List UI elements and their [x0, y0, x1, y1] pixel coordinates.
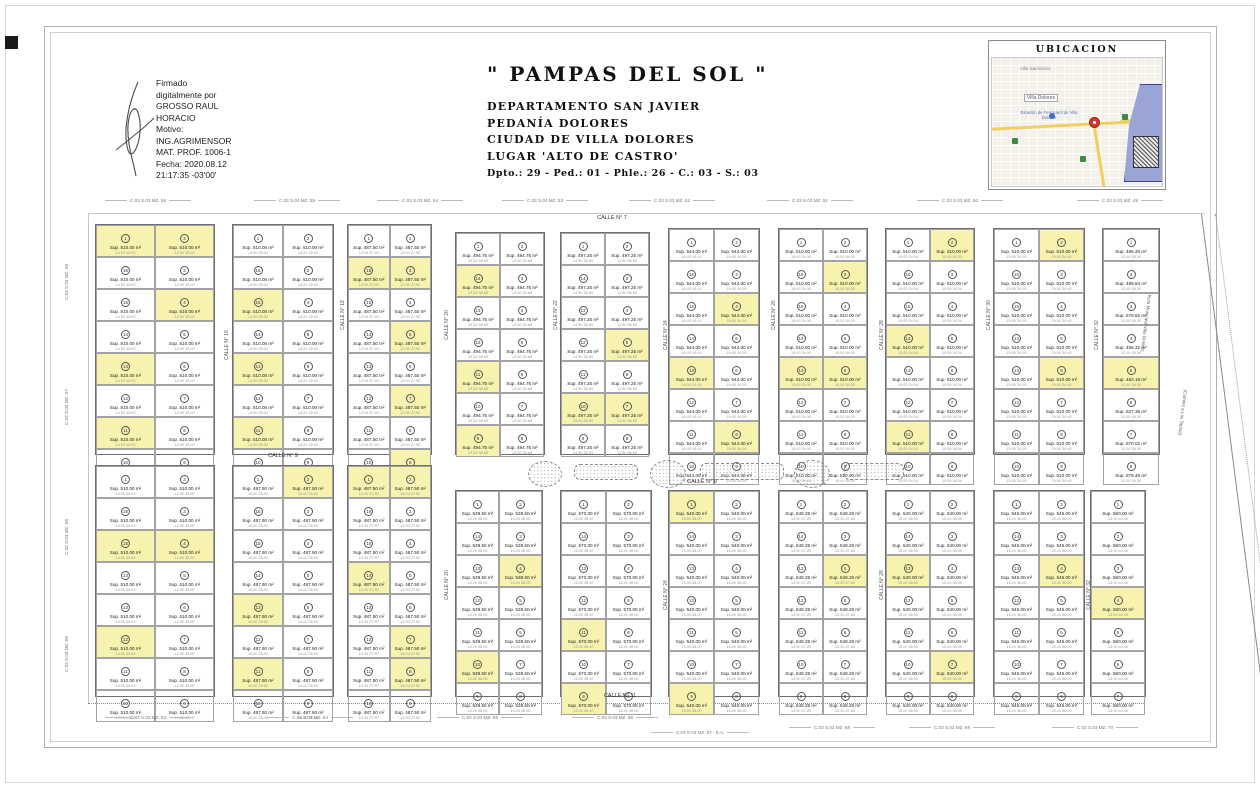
lot-number: 12	[1012, 596, 1021, 605]
lot: 1Sup. 497.25 m²13.50 36.83	[561, 233, 605, 265]
lot-number: 16	[364, 507, 373, 516]
lot-dimensions: 14.50 35.00	[156, 379, 213, 384]
lot: 6Sup. 487.50 m²13.00 37.50	[390, 594, 432, 626]
lot-number: 14	[254, 571, 263, 580]
lot-number: 16	[364, 266, 373, 275]
lot-dimensions: 14.20 38.00	[500, 613, 541, 618]
manzana-block: 1Sup. 510.00 m²14.50 35.002Sup. 510.00 m…	[232, 224, 334, 455]
lot-dimensions: 13.50 36.83	[562, 451, 604, 456]
map-site-hatch	[1133, 136, 1159, 168]
lot: 4Sup. 487.50 m²13.00 37.50	[390, 530, 432, 562]
lot-number: 7	[516, 660, 525, 669]
lot-number: 13	[797, 564, 806, 573]
lot-dimensions: 15.00 38.00	[607, 517, 650, 522]
lot: 3Sup. 560.00 m²13.00 40.00	[1091, 555, 1145, 587]
lot-number: 1	[254, 475, 263, 484]
lot-dimensions: 15.00 36.00	[931, 549, 973, 554]
lot-number: 13	[579, 306, 588, 315]
lot-dimensions: 13.50 36.83	[562, 387, 604, 392]
manzana-block: 1Sup. 548.25 m²14.50 37.802Sup. 548.25 m…	[778, 490, 868, 697]
lot-number: 10	[254, 699, 263, 708]
lot-dimensions: 16.00 34.00	[670, 255, 713, 260]
lot-number: 3	[406, 507, 415, 516]
lot-number: 12	[797, 596, 806, 605]
lot-number: 11	[904, 628, 913, 637]
lot: 5Sup. 487.50 m²13.00 37.50	[390, 562, 432, 594]
street-label-vertical: CALLE N° 18	[340, 300, 346, 330]
lot: 3Sup. 548.25 m²14.50 37.80	[823, 523, 867, 555]
lot: 9Sup. 494.75 m²13.50 36.65	[456, 425, 500, 457]
lot-dimensions: 14.50 35.00	[97, 315, 154, 320]
lot-dimensions: 15.00 36.00	[931, 613, 973, 618]
lot: 6Sup. 546.00 m²15.20 36.00	[1039, 619, 1084, 651]
lot-dimensions: 15.20 36.00	[1040, 645, 1083, 650]
lot: 4Sup. 560.00 m²13.00 40.00	[1091, 587, 1145, 619]
lot-number: 3	[180, 507, 189, 516]
lot-number: 6	[518, 370, 527, 379]
lot-dimensions: 15.00 36.00	[670, 645, 713, 650]
lot-number: 12	[797, 398, 806, 407]
block-cadastral-label-vertical: C.03 S.03 MZ. 66	[64, 519, 69, 555]
lot-dimensions: 14.50 35.00	[97, 411, 154, 416]
lot-dimensions: 14.50 35.00	[97, 379, 154, 384]
lot-dimensions: 13.50 36.83	[562, 419, 604, 424]
manzana-block: 1Sup. 497.25 m²13.50 36.832Sup. 497.25 m…	[560, 232, 650, 455]
lot-number: 2	[304, 234, 313, 243]
lot-number: 5	[304, 330, 313, 339]
lot: 7Sup. 539.50 m²14.20 38.00	[499, 651, 542, 683]
lot-number: 11	[797, 430, 806, 439]
lot-dimensions: 15.00 34.00	[931, 479, 973, 484]
lot: 11Sup. 487.50 m²13.00 37.50	[348, 658, 390, 690]
lot-number: 3	[623, 274, 632, 283]
lot: 2Sup. 487.50 m²13.00 37.50	[390, 225, 432, 257]
lot-dimensions: 14.50 35.00	[156, 684, 213, 689]
lot: 5Sup. 510.00 m²14.50 35.00	[283, 321, 333, 353]
lot-dimensions: 12.50 38.30	[1104, 479, 1158, 484]
north-boundary-line	[88, 213, 1204, 214]
lot: 12Sup. 510.00 m²14.50 35.00	[233, 385, 283, 417]
lot-number: 8	[516, 692, 525, 701]
lot-number: 11	[474, 370, 483, 379]
lot-number: 15	[904, 302, 913, 311]
lot-number: 4	[516, 564, 525, 573]
lot: 3Sup. 539.50 m²14.20 38.00	[499, 523, 542, 555]
lot: 12Sup. 544.00 m²16.00 34.00	[669, 389, 714, 421]
lot-dimensions: 13.00 37.50	[349, 347, 389, 352]
lot-dimensions: 14.00 35.00	[284, 684, 332, 689]
lot-dimensions: 14.50 37.80	[780, 549, 822, 554]
lot-dimensions: 13.50 36.65	[457, 355, 499, 360]
lot-number: 7	[624, 660, 633, 669]
lot-number: 1	[904, 238, 913, 247]
lot: 9Sup. 510.00 m²15.00 34.00	[930, 453, 974, 485]
lot-dimensions: 14.00 35.00	[234, 684, 282, 689]
lot-dimensions: 15.00 34.00	[887, 255, 929, 260]
lot-number: 8	[623, 434, 632, 443]
lot-number: 11	[1012, 430, 1021, 439]
lot-dimensions: 14.00 35.00	[284, 556, 332, 561]
lot-number: 8	[406, 667, 415, 676]
lot-number: 4	[948, 302, 957, 311]
block-cadastral-label: C.03 S.03 MZ. 66	[569, 714, 661, 720]
lot: 14Sup. 539.50 m²14.20 38.00	[456, 523, 499, 555]
lot-dimensions: 15.00 36.00	[887, 677, 929, 682]
map-label-station: Estación de Ferrocarril de Villa Dolores	[1020, 110, 1078, 120]
lot-dimensions: 13.00 37.50	[349, 443, 389, 448]
lot-number: 8	[732, 430, 741, 439]
lot: 14Sup. 548.25 m²14.50 37.80	[779, 523, 823, 555]
lot-number: 2	[732, 500, 741, 509]
lot: 3Sup. 540.00 m²15.00 36.00	[714, 523, 759, 555]
lot: 2Sup. 540.00 m²15.00 36.00	[714, 491, 759, 523]
lot-number: 16	[687, 270, 696, 279]
lot-dimensions: 14.50 35.00	[97, 251, 154, 256]
lot-number: 16	[121, 507, 130, 516]
lot: 2Sup. 548.25 m²14.50 37.80	[823, 491, 867, 523]
lot-dimensions: 15.00 34.00	[887, 319, 929, 324]
lot-dimensions: 15.00 36.00	[715, 581, 758, 586]
lot-dimensions: 13.50 36.65	[457, 387, 499, 392]
lot: 7Sup. 570.02 m²12.50 38.30	[1103, 421, 1159, 453]
lot-number: 5	[1057, 334, 1066, 343]
lot-number: 14	[797, 532, 806, 541]
lot-number: 5	[304, 571, 313, 580]
lot: 8Sup. 497.25 m²13.50 36.83	[605, 425, 649, 457]
lot-dimensions: 14.50 35.00	[234, 283, 282, 288]
manzana-block: 1Sup. 510.00 m²14.50 35.002Sup. 510.00 m…	[95, 465, 215, 697]
lot-dimensions: 14.50 35.00	[234, 251, 282, 256]
lot-number: 2	[180, 475, 189, 484]
lot-number: 13	[904, 366, 913, 375]
lot-number: 2	[623, 242, 632, 251]
lot-dimensions: 15.00 34.00	[780, 319, 822, 324]
lot-dimensions: 15.00 34.00	[887, 383, 929, 388]
lot: 5Sup. 560.00 m²13.00 40.00	[1091, 619, 1145, 651]
lot: 6Sup. 487.50 m²13.00 37.50	[390, 353, 432, 385]
lot-number: 10	[1012, 462, 1021, 471]
lot-number: 8	[1057, 692, 1066, 701]
lot: 16Sup. 510.00 m²14.50 35.00	[96, 498, 155, 530]
lot-number: 9	[406, 699, 415, 708]
lot-number: 5	[518, 338, 527, 347]
lot-dimensions: 14.20 38.00	[500, 677, 541, 682]
lot: 12Sup. 487.50 m²13.00 37.50	[348, 626, 390, 658]
lot-number: 11	[254, 667, 263, 676]
lot-number: 13	[579, 564, 588, 573]
lot-dimensions: 15.00 34.00	[931, 287, 973, 292]
lot-dimensions: 15.00 36.00	[715, 517, 758, 522]
lot-dimensions: 13.50 36.65	[457, 259, 499, 264]
lot-dimensions: 14.50 35.00	[156, 411, 213, 416]
lot-dimensions: 13.50 36.83	[606, 323, 648, 328]
lot-number: 7	[406, 635, 415, 644]
lot: 15Sup. 510.00 m²15.00 34.00	[779, 293, 823, 325]
lot-dimensions: 14.00 35.00	[284, 652, 332, 657]
lot: 12Sup. 497.25 m²13.50 36.83	[561, 329, 605, 361]
lot-dimensions: 15.00 34.00	[1040, 255, 1083, 260]
lot-dimensions: 14.00 35.00	[234, 492, 282, 497]
lot-dimensions: 15.00 34.00	[824, 415, 866, 420]
lot-number: 12	[254, 635, 263, 644]
lot-dimensions: 13.50 36.83	[606, 451, 648, 456]
lot-number: 10	[904, 660, 913, 669]
lot: 5Sup. 497.25 m²13.50 36.83	[605, 329, 649, 361]
lot-dimensions: 16.00 34.00	[670, 319, 713, 324]
lot: 14Sup. 540.00 m²15.00 36.00	[886, 523, 930, 555]
lot-number: 7	[841, 660, 850, 669]
lot-number: 4	[732, 564, 741, 573]
lot: 11Sup. 510.00 m²15.00 34.00	[994, 421, 1039, 453]
lot: 13Sup. 510.00 m²15.00 34.00	[779, 357, 823, 389]
lot: 5Sup. 540.00 m²15.00 36.00	[714, 587, 759, 619]
lot: 4Sup. 546.00 m²15.20 36.00	[1039, 555, 1084, 587]
lot-dimensions: 15.20 36.00	[995, 677, 1038, 682]
lot: 10Sup. 570.00 m²15.00 38.00	[561, 651, 606, 683]
cadastral-nomenclature: Dpto.: 29 - Ped.: 01 - Phle.: 26 - C.: 0…	[487, 168, 717, 179]
lot: 16Sup. 510.00 m²14.50 35.00	[233, 257, 283, 289]
route-shield-icon	[1012, 138, 1018, 144]
lot-dimensions: 15.20 36.00	[1040, 613, 1083, 618]
lot-dimensions: 15.00 34.00	[1040, 319, 1083, 324]
green-space-shape	[574, 464, 638, 480]
lot-number: 12	[254, 394, 263, 403]
lot-number: 15	[254, 298, 263, 307]
lot-dimensions: 14.20 38.00	[457, 613, 498, 618]
lot-number: 6	[180, 603, 189, 612]
lot: 16Sup. 487.50 m²13.00 37.50	[348, 257, 390, 289]
lot-number: 7	[304, 635, 313, 644]
lot-number: 10	[904, 462, 913, 471]
lot-dimensions: 15.00 38.00	[607, 581, 650, 586]
lot: 13Sup. 548.25 m²14.50 37.80	[779, 555, 823, 587]
lot: 7Sup. 540.00 m²15.00 36.00	[714, 651, 759, 683]
lot: 14Sup. 510.00 m²15.00 34.00	[994, 325, 1039, 357]
lot-dimensions: 14.50 35.00	[156, 556, 213, 561]
lot-number: 13	[1012, 366, 1021, 375]
lot-number: 14	[121, 330, 130, 339]
lot-dimensions: 14.50 35.00	[284, 283, 332, 288]
lot-dimensions: 15.00 36.00	[670, 549, 713, 554]
block-cadastral-label-vertical: C.03 S.03 MZ. 57	[64, 389, 69, 425]
street-label-vertical: CALLE N° 24	[663, 580, 669, 610]
lot: 1Sup. 510.00 m²14.50 35.00	[96, 466, 155, 498]
lot: 11Sup. 510.00 m²15.00 34.00	[886, 421, 930, 453]
lot-number: 12	[687, 398, 696, 407]
lot: 5Sup. 494.75 m²13.50 36.65	[500, 329, 544, 361]
block-cadastral-label: C.03 S.03 MZ. 55	[251, 197, 343, 203]
lot-number: 6	[732, 628, 741, 637]
lot: 14Sup. 497.25 m²13.50 36.83	[561, 265, 605, 297]
street-label-vertical: CALLE N° 22	[553, 300, 559, 330]
lot: 7Sup. 510.00 m²15.00 34.00	[930, 389, 974, 421]
lot-dimensions: 13.00 37.50	[391, 347, 431, 352]
lot-number: 13	[474, 306, 483, 315]
lot-dimensions: 13.50 36.83	[606, 291, 648, 296]
lot-dimensions: 14.00 35.00	[234, 588, 282, 593]
lot: 6Sup. 548.25 m²14.50 37.80	[823, 619, 867, 651]
lot-dimensions: 15.00 34.00	[780, 383, 822, 388]
lot-number: 5	[1114, 628, 1123, 637]
lot: 3Sup. 510.00 m²14.50 35.00	[155, 498, 214, 530]
lot: 3Sup. 510.00 m²14.50 35.00	[283, 257, 333, 289]
lot-dimensions: 15.00 36.00	[715, 709, 758, 714]
lot-dimensions: 13.00 37.50	[349, 684, 389, 689]
lot-dimensions: 12.50 38.30	[1104, 351, 1158, 356]
lot-number: 1	[473, 500, 482, 509]
lot: 1Sup. 544.00 m²16.00 34.00	[669, 229, 714, 261]
lot-dimensions: 15.00 34.00	[995, 479, 1038, 484]
lot: 4Sup. 539.50 m²14.20 38.00	[499, 555, 542, 587]
street-label-vertical: CALLE N° 28	[879, 570, 885, 600]
lot: 11Sup. 497.25 m²13.50 36.83	[561, 361, 605, 393]
lot: 4Sup. 456.32 m²12.50 38.30	[1103, 325, 1159, 357]
lot: 8Sup. 548.25 m²14.50 37.80	[823, 683, 867, 715]
lot-number: 1	[1127, 238, 1136, 247]
lot: 5Sup. 483.19 m²12.50 38.30	[1103, 357, 1159, 389]
lot-dimensions: 15.20 36.00	[995, 517, 1038, 522]
lot-dimensions: 14.50 35.00	[97, 652, 154, 657]
lot: 4Sup. 497.25 m²13.50 36.83	[605, 297, 649, 329]
lot-dimensions: 13.00 37.50	[391, 524, 431, 529]
lot-number: 3	[1127, 302, 1136, 311]
lot-number: 9	[797, 692, 806, 701]
lot-dimensions: 15.00 38.00	[607, 613, 650, 618]
department-line: DEPARTAMENTO SAN JAVIER	[487, 100, 717, 113]
manzana-block: 1Sup. 510.00 m²15.00 34.002Sup. 510.00 m…	[885, 228, 975, 455]
lot: 12Sup. 487.50 m²14.00 35.00	[233, 626, 283, 658]
lot: 4Sup. 570.00 m²15.00 38.00	[606, 555, 651, 587]
green-space-shape	[650, 460, 686, 488]
lot-dimensions: 13.50 36.65	[501, 291, 543, 296]
block-cadastral-label: C.03 S.03 MZ. 70	[1049, 724, 1141, 730]
lot: 15Sup. 510.00 m²14.50 35.00	[233, 289, 283, 321]
lot: 7Sup. 570.00 m²15.00 38.00	[606, 651, 651, 683]
lot-dimensions: 14.50 35.00	[234, 443, 282, 448]
lot-number: 10	[687, 660, 696, 669]
lot-dimensions: 15.00 34.00	[780, 447, 822, 452]
lot: 4Sup. 510.00 m²14.50 35.00	[283, 289, 333, 321]
lot-number: 8	[732, 692, 741, 701]
lot: 1Sup. 510.00 m²14.50 35.00	[96, 225, 155, 257]
lot-number: 2	[406, 475, 415, 484]
lot-dimensions: 15.00 34.00	[824, 287, 866, 292]
lot-number: 5	[948, 596, 957, 605]
lot-number: 15	[364, 539, 373, 548]
lot: 12Sup. 546.00 m²15.20 36.00	[994, 587, 1039, 619]
lot: 7Sup. 510.00 m²14.50 35.00	[155, 626, 214, 658]
lot: 11Sup. 546.00 m²15.20 36.00	[994, 619, 1039, 651]
lot-dimensions: 13.00 40.00	[1092, 613, 1144, 618]
lot-dimensions: 14.50 37.80	[824, 677, 866, 682]
lot-dimensions: 16.00 34.00	[670, 415, 713, 420]
lot-dimensions: 14.00 35.00	[284, 524, 332, 529]
lot-dimensions: 13.00 40.00	[1092, 709, 1144, 714]
lot-number: 2	[624, 500, 633, 509]
lot: 11Sup. 510.00 m²15.00 34.00	[779, 421, 823, 453]
lot-dimensions: 15.20 36.00	[1040, 549, 1083, 554]
lot-number: 14	[121, 571, 130, 580]
lot-number: 3	[841, 270, 850, 279]
lot-dimensions: 16.00 34.00	[670, 287, 713, 292]
lot-dimensions: 14.50 37.80	[780, 613, 822, 618]
lot-number: 12	[121, 635, 130, 644]
lot-number: 4	[180, 298, 189, 307]
lot: 7Sup. 487.50 m²14.00 35.00	[283, 626, 333, 658]
lot-dimensions: 15.00 34.00	[1040, 479, 1083, 484]
lot-dimensions: 14.50 35.00	[97, 620, 154, 625]
lot-number: 12	[121, 394, 130, 403]
lot-number: 7	[1127, 430, 1136, 439]
lot-dimensions: 14.00 35.00	[284, 492, 332, 497]
lot-number: 12	[474, 338, 483, 347]
lot-dimensions: 15.00 36.00	[887, 613, 929, 618]
lot-number: 10	[474, 402, 483, 411]
lot-dimensions: 13.50 36.65	[457, 419, 499, 424]
street-label-vertical: CALLE N° 20	[444, 570, 450, 600]
lot-dimensions: 14.50 35.00	[156, 315, 213, 320]
lot-number: 5	[516, 596, 525, 605]
lot-dimensions: 15.00 36.00	[887, 645, 929, 650]
lot-dimensions: 15.00 36.00	[931, 517, 973, 522]
lot-number: 9	[687, 692, 696, 701]
lot: 12Sup. 548.25 m²14.50 37.80	[779, 587, 823, 619]
lot-dimensions: 15.00 34.00	[931, 255, 973, 260]
lot-number: 5	[180, 571, 189, 580]
lot-dimensions: 16.00 34.00	[715, 351, 758, 356]
lot-dimensions: 15.00 34.00	[887, 287, 929, 292]
lot: 10Sup. 494.75 m²13.50 36.65	[456, 393, 500, 425]
lot-number: 16	[254, 266, 263, 275]
lot: 7Sup. 510.00 m²15.00 34.00	[1039, 389, 1084, 421]
plan-sheet: Firmado digitalmente por GROSSO RAUL HOR…	[0, 0, 1260, 788]
lot-number: 4	[180, 539, 189, 548]
lot: 3Sup. 546.00 m²15.20 36.00	[1039, 523, 1084, 555]
lot-dimensions: 13.00 37.50	[391, 588, 431, 593]
lot: 4Sup. 540.00 m²15.00 36.00	[930, 555, 974, 587]
lot-number: 6	[304, 362, 313, 371]
lot: 13Sup. 570.00 m²15.00 38.00	[561, 555, 606, 587]
lot-dimensions: 15.00 38.00	[562, 613, 605, 618]
lot-dimensions: 15.00 34.00	[887, 351, 929, 356]
lot-dimensions: 15.00 36.00	[887, 517, 929, 522]
lot-number: 14	[797, 334, 806, 343]
lot: 3Sup. 510.00 m²15.00 34.00	[1039, 261, 1084, 293]
manzana-block: 1Sup. 540.00 m²15.00 36.002Sup. 540.00 m…	[668, 490, 760, 697]
lot-dimensions: 15.00 36.00	[931, 645, 973, 650]
block-cadastral-label: C.03 S.03 MZ. 49	[1074, 197, 1166, 203]
lot: 12Sup. 510.00 m²15.00 34.00	[886, 389, 930, 421]
lot-number: 3	[1057, 270, 1066, 279]
lot-number: 10	[1012, 660, 1021, 669]
lot: 2Sup. 540.00 m²15.00 36.00	[930, 491, 974, 523]
lot: 5Sup. 570.00 m²15.00 38.00	[606, 587, 651, 619]
lot: 4Sup. 510.00 m²15.00 34.00	[930, 293, 974, 325]
lot: 5Sup. 510.00 m²15.00 34.00	[823, 325, 867, 357]
lot-number: 9	[304, 699, 313, 708]
lot: 5Sup. 544.00 m²16.00 34.00	[714, 325, 759, 357]
lot-dimensions: 14.50 35.00	[234, 315, 282, 320]
lot-dimensions: 15.00 36.00	[931, 709, 973, 714]
lot-dimensions: 13.00 37.50	[349, 251, 389, 256]
lot-dimensions: 13.50 36.83	[606, 259, 648, 264]
lot: 6Sup. 527.36 m²12.50 38.30	[1103, 389, 1159, 421]
lot-dimensions: 15.20 36.00	[1040, 581, 1083, 586]
lot-dimensions: 14.50 37.80	[824, 549, 866, 554]
lot: 10Sup. 510.00 m²15.00 34.00	[994, 453, 1039, 485]
street-label: CALLE N° 7	[597, 215, 627, 221]
manzana-block: 1Sup. 510.00 m²15.00 34.002Sup. 510.00 m…	[993, 228, 1085, 455]
